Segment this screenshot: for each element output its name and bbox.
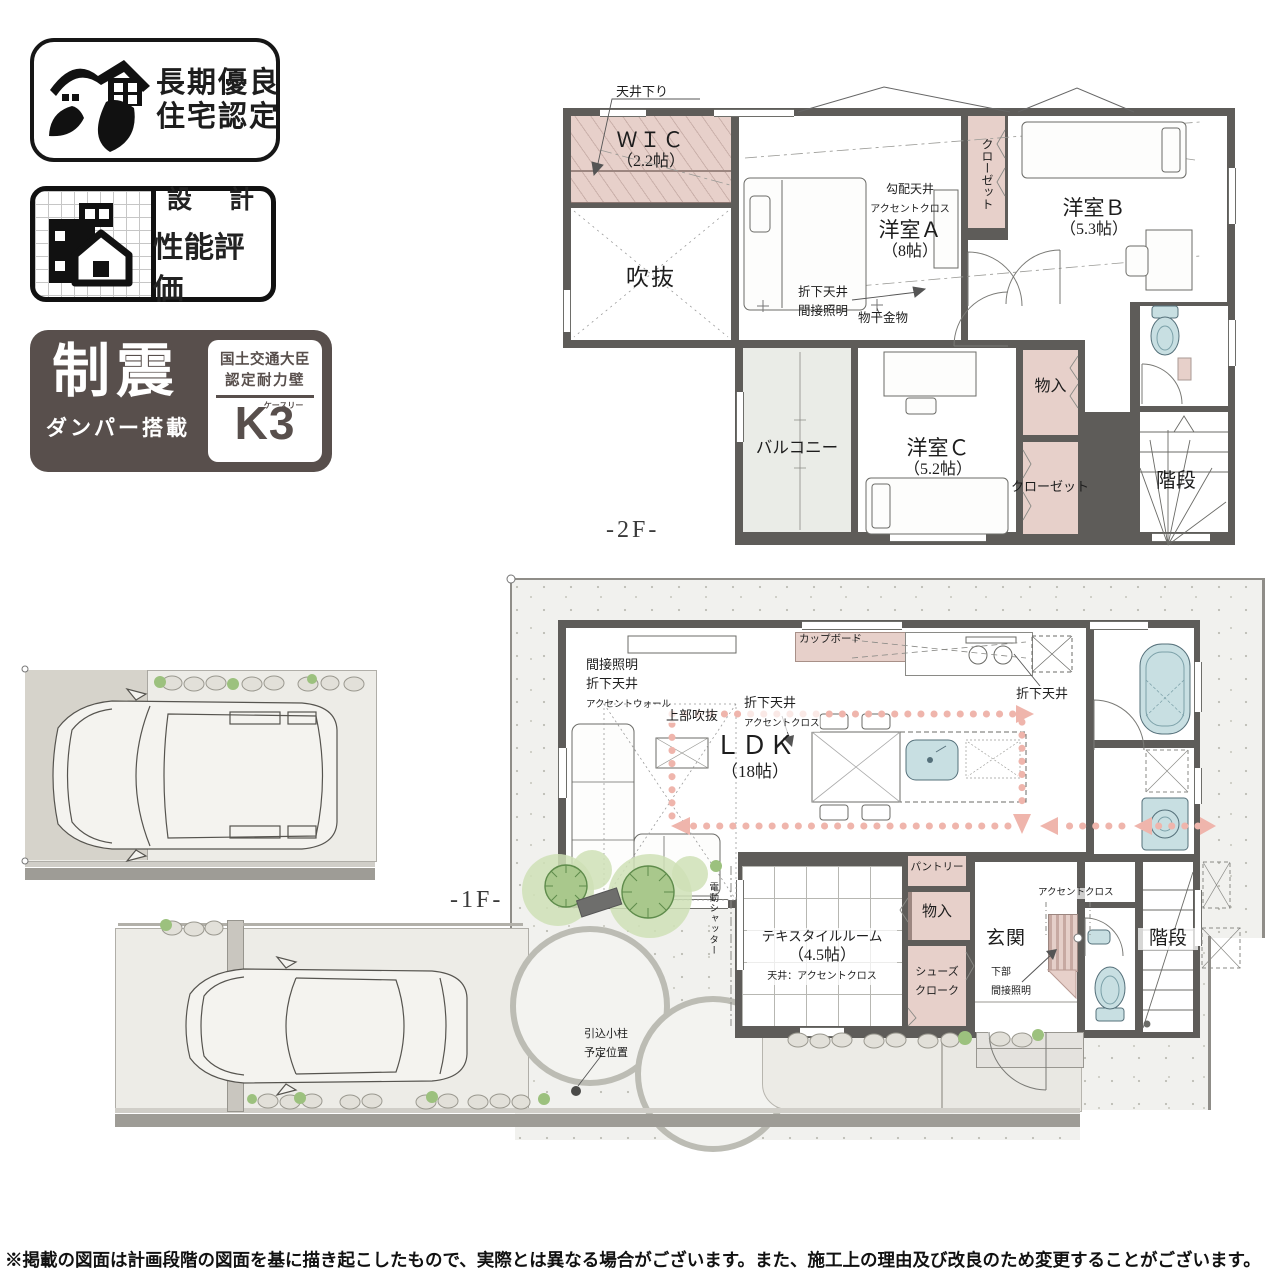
f1-note-kitchen-ceiling: 折下天井 xyxy=(1016,686,1068,701)
f1-label-stairs: 階段 xyxy=(1138,928,1198,950)
parking-top-dark-half xyxy=(25,670,148,860)
f1-window xyxy=(736,880,744,970)
f1-note-lower-indirect: 下部 間接照明 xyxy=(991,962,1031,1000)
f1-window xyxy=(1194,662,1202,712)
badge-damper-main: 制震 xyxy=(52,338,180,406)
grid-house-logo-icon xyxy=(35,191,156,297)
road-strip-bottom-dark xyxy=(115,1114,1080,1127)
f1-kitchen-counter xyxy=(905,632,1033,676)
f2-room-label-balcony: バルコニー xyxy=(745,438,849,457)
badge-longlife-line1: 長期優良 xyxy=(156,67,280,99)
f1-window xyxy=(1194,768,1202,804)
f2-label-storage: 物入 xyxy=(1023,378,1078,397)
terrace xyxy=(762,1032,942,1110)
f2-room-label-western-b: 洋室Ｂ （5.3帖） xyxy=(1032,196,1156,240)
f1-room-label-textile: テキスタイルルーム （4.5帖） 天井：アクセントクロス xyxy=(747,928,897,985)
f2-room-label-western-a: 勾配天井 アクセントクロス 洋室Ａ （8帖） xyxy=(845,180,975,262)
f1-room-label-genkan: 玄関 xyxy=(986,928,1026,950)
f1-label-storage: 物入 xyxy=(908,904,966,922)
f1-room-toilet xyxy=(1085,908,1135,1030)
badge-k3-cert2: 認定耐力壁 xyxy=(208,369,322,390)
floor2-caption: -2F- xyxy=(606,516,659,544)
f1-room-bath xyxy=(1094,628,1194,740)
f1-porch-step-line xyxy=(976,1048,1082,1049)
f1-note-indirect: 間接照明 折下天井 アクセントウォール xyxy=(586,656,671,713)
f1-note-folded-accent: 折下天井 アクセントクロス xyxy=(744,694,820,732)
f1-window xyxy=(800,1027,844,1037)
badge-design-performance: 設 計 性能評価 xyxy=(30,186,276,302)
f2-note-laundry-hook: 物干金物 xyxy=(858,311,908,326)
f1-label-cupboard: カップボード xyxy=(799,634,862,646)
f2-room-toilet xyxy=(1140,306,1228,406)
f1-note-upper-void: 上部吹抜 xyxy=(666,708,718,723)
badge-k3-card: 国土交通大臣 認定耐力壁 K3 ケースリー xyxy=(208,340,322,462)
f2-window xyxy=(563,290,571,332)
f2-ceiling-drop-note: 天井下り xyxy=(616,84,668,99)
parking-bottom xyxy=(115,928,529,1112)
f2-window xyxy=(890,533,986,542)
f1-entry-door-gap xyxy=(988,1030,1044,1038)
f2-window xyxy=(1228,320,1236,366)
f2-label-stairs: 階段 xyxy=(1136,470,1216,494)
house-leaf-logo-icon xyxy=(44,50,156,158)
f1-entrance-accent-wall xyxy=(1048,914,1078,972)
f1-window xyxy=(802,621,902,630)
floor1-caption: -1F- xyxy=(450,886,503,914)
footer-disclaimer: ※掲載の図面は計画段階の図面を基に描き起こしたもので、実際とは異なる場合がござい… xyxy=(5,1247,1277,1272)
f1-note-pole-position: 引込小柱 予定位置 xyxy=(575,1024,637,1062)
badge-seismic-damper: 制震 ダンパー搭載 国土交通大臣 認定耐力壁 K3 ケースリー xyxy=(30,330,332,472)
road-strip-top-light xyxy=(25,862,375,867)
f2-window xyxy=(600,109,646,117)
f2-window xyxy=(1228,168,1236,224)
f1-note-accent-cloth: アクセントクロス xyxy=(1038,888,1114,899)
f1-label-pantry: パントリー xyxy=(906,862,968,874)
f1-room-wash xyxy=(1094,748,1194,854)
badge-k3-cert1: 国土交通大臣 xyxy=(208,348,322,369)
badge-longlife-line2: 住宅認定 xyxy=(156,101,280,133)
f2-window xyxy=(736,392,744,442)
f2-window xyxy=(714,109,794,117)
badge-damper-sub: ダンパー搭載 xyxy=(46,416,190,441)
f1-window xyxy=(558,748,567,798)
badge-design-top: 設 計 xyxy=(167,180,260,216)
f1-label-shoes-cloak: シューズ クローク xyxy=(908,962,966,1000)
f2-window xyxy=(1152,533,1210,542)
road-strip-bottom-light xyxy=(115,1108,1080,1113)
gate-post xyxy=(227,920,244,1112)
f1-room-label-ldk: ＬＤＫ （18帖） xyxy=(700,731,810,783)
f1-note-shutter: 電動シャッター xyxy=(706,882,717,956)
badge-k3-kana: ケースリー xyxy=(264,400,304,411)
fence-line xyxy=(243,923,523,926)
fence-line xyxy=(118,923,227,926)
f1-window xyxy=(1090,621,1148,630)
badge-longlife-housing: 長期優良 住宅認定 xyxy=(30,38,280,162)
f2-label-closet-a: クローゼット xyxy=(970,122,1004,226)
floorplan-flyer: 長期優良 住宅認定 設 計 性能評価 制震 ダンパー搭載 国土交通大臣 認定耐力… xyxy=(0,0,1280,1280)
road-strip-top-dark xyxy=(25,868,375,880)
f2-corridor xyxy=(1085,340,1130,412)
f2-room-label-void: 吹抜 xyxy=(571,264,731,291)
badge-design-bottom: 性能評価 xyxy=(153,224,274,308)
f2-note-folded-ceiling: 折下天井 間接照明 xyxy=(798,283,848,321)
f2-room-label-western-c: 洋室Ｃ （5.2帖） xyxy=(876,436,1000,480)
f2-label-closet-c: クローゼット xyxy=(1000,479,1100,494)
f2-hall xyxy=(968,240,1130,340)
f2-room-label-wic: ＷＩＣ （2.2帖） xyxy=(571,128,731,172)
